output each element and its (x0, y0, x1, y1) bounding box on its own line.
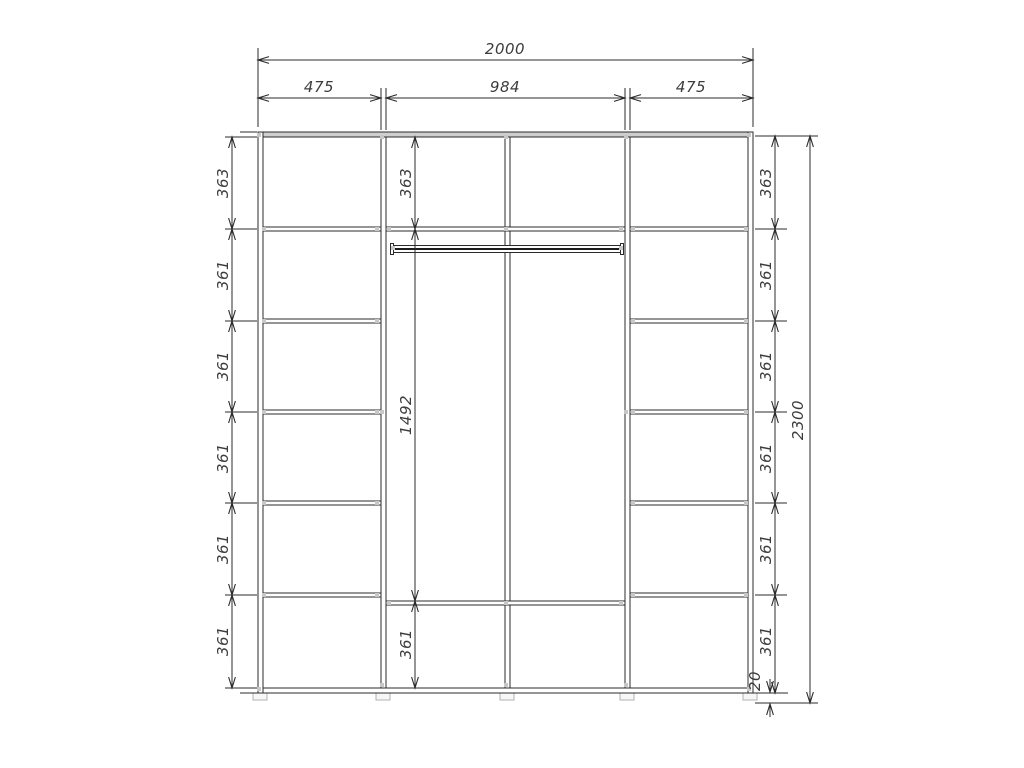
shelf (263, 410, 381, 414)
dim-right-section-width: 475 (676, 78, 706, 96)
dim-right-row-6: 361 (757, 626, 775, 656)
dim-left-row-1: 363 (214, 168, 232, 198)
foot (500, 693, 514, 700)
shelf (630, 410, 748, 414)
dim-left-row-2: 361 (214, 260, 232, 290)
shelf (630, 593, 748, 597)
dimension-lines (232, 60, 810, 717)
dim-right-row-1: 363 (757, 168, 775, 198)
foot (620, 693, 634, 700)
dim-right-row-3: 361 (757, 351, 775, 381)
drawing-canvas: 2000 475 984 475 363 361 361 361 361 361… (0, 0, 1024, 768)
dim-left-row-5: 361 (214, 534, 232, 564)
dim-center-section-width: 984 (490, 78, 520, 96)
wardrobe-dimension-drawing: 2000 475 984 475 363 361 361 361 361 361… (0, 0, 1024, 768)
dim-left-row-3: 361 (214, 351, 232, 381)
dim-left-row-6: 361 (214, 626, 232, 656)
dim-right-row-2: 361 (757, 260, 775, 290)
dim-left-row-4: 361 (214, 443, 232, 473)
bottom-panel (258, 688, 753, 693)
foot (253, 693, 267, 700)
dim-left-section-width: 475 (304, 78, 334, 96)
dim-center-middle: 1492 (397, 395, 415, 435)
shelf (263, 319, 381, 323)
dim-overall-width: 2000 (485, 40, 525, 58)
dim-center-bottom: 361 (397, 629, 415, 659)
dim-center-top: 363 (397, 168, 415, 198)
dim-plinth-height: 20 (746, 671, 764, 691)
shelf (630, 319, 748, 323)
hanging-rod (391, 244, 624, 255)
dim-right-row-4: 361 (757, 443, 775, 473)
foot (376, 693, 390, 700)
dim-overall-height: 2300 (789, 400, 807, 440)
shelf (630, 227, 748, 231)
shelf (263, 501, 381, 505)
dim-right-row-5: 361 (757, 534, 775, 564)
right-side-panel (748, 132, 753, 693)
shelf (263, 593, 381, 597)
feet (253, 693, 757, 700)
foot (743, 693, 757, 700)
shelf (630, 501, 748, 505)
shelf (263, 227, 381, 231)
